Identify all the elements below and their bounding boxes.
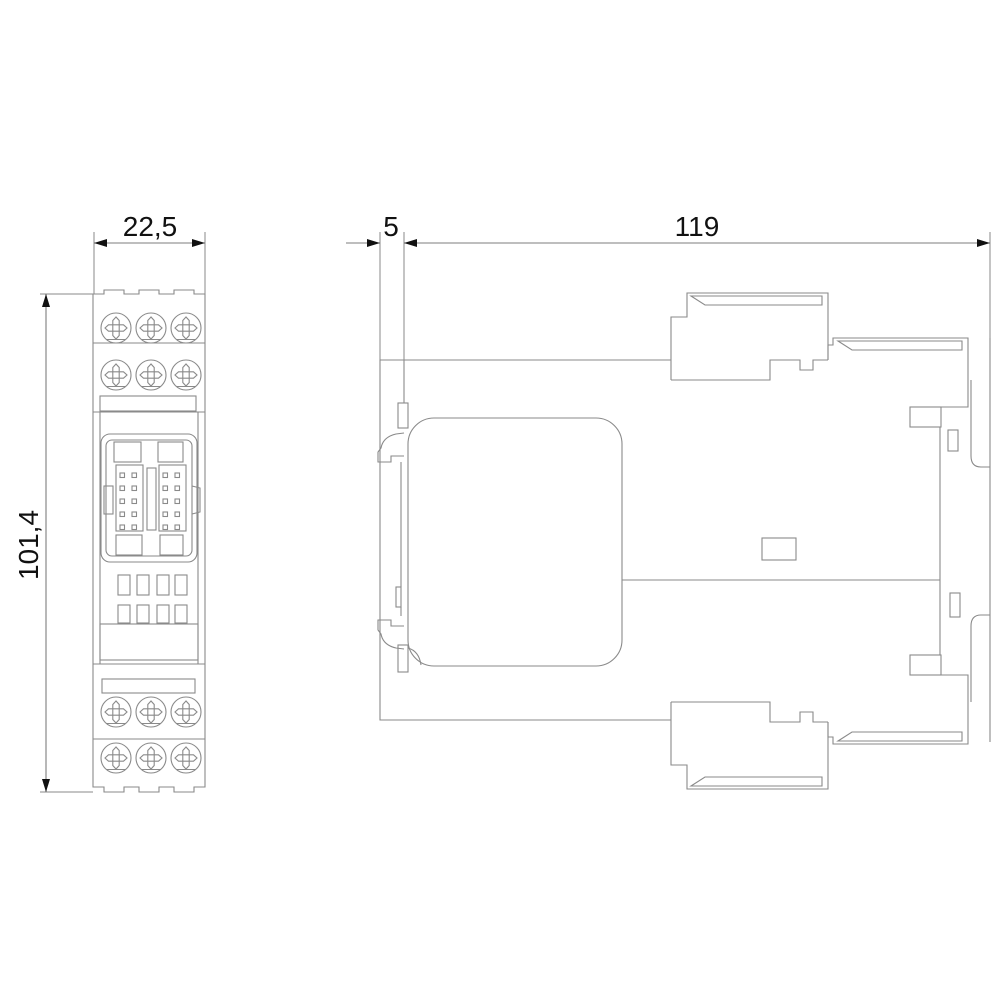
lower-terminal-housings <box>671 655 968 789</box>
indicator-windows <box>118 575 187 623</box>
dim-arrow-down <box>42 779 50 792</box>
front-width-label: 22,5 <box>123 211 178 242</box>
upper-label-slot <box>100 396 196 411</box>
dim-arrow-right <box>977 239 990 247</box>
front-section-lines <box>93 343 205 739</box>
dim-side-depth: 119 <box>404 211 990 338</box>
dim-arrow-left <box>94 239 107 247</box>
side-base-outline <box>380 338 990 742</box>
front-outline <box>93 290 205 792</box>
upper-terminal-housings <box>671 293 968 427</box>
side-depth-label: 119 <box>675 211 720 242</box>
idc-connector <box>101 434 200 562</box>
dim-side-offset: 5 <box>346 211 404 360</box>
dimensional-drawing: 22,5 101,4 5 119 <box>0 0 1000 1000</box>
front-view <box>93 290 205 792</box>
dim-arrow-left <box>404 239 417 247</box>
lower-label-slot <box>102 679 195 693</box>
relay-body <box>408 418 622 666</box>
marking-field <box>100 624 198 660</box>
technical-drawing-canvas: 22,5 101,4 5 119 <box>0 0 1000 1000</box>
lower-screw-terminals <box>101 697 201 773</box>
side-middle-details <box>622 380 990 702</box>
dim-arrow-right <box>367 239 380 247</box>
dim-arrow-up <box>42 294 50 307</box>
side-view <box>378 293 990 789</box>
dim-front-height: 101,4 <box>13 294 93 792</box>
dim-arrow-right <box>192 239 205 247</box>
upper-screw-terminals <box>101 313 201 390</box>
dim-front-width: 22,5 <box>94 211 205 294</box>
side-offset-label: 5 <box>383 211 399 242</box>
front-height-label: 101,4 <box>13 510 44 580</box>
din-rail-clip <box>378 360 421 672</box>
